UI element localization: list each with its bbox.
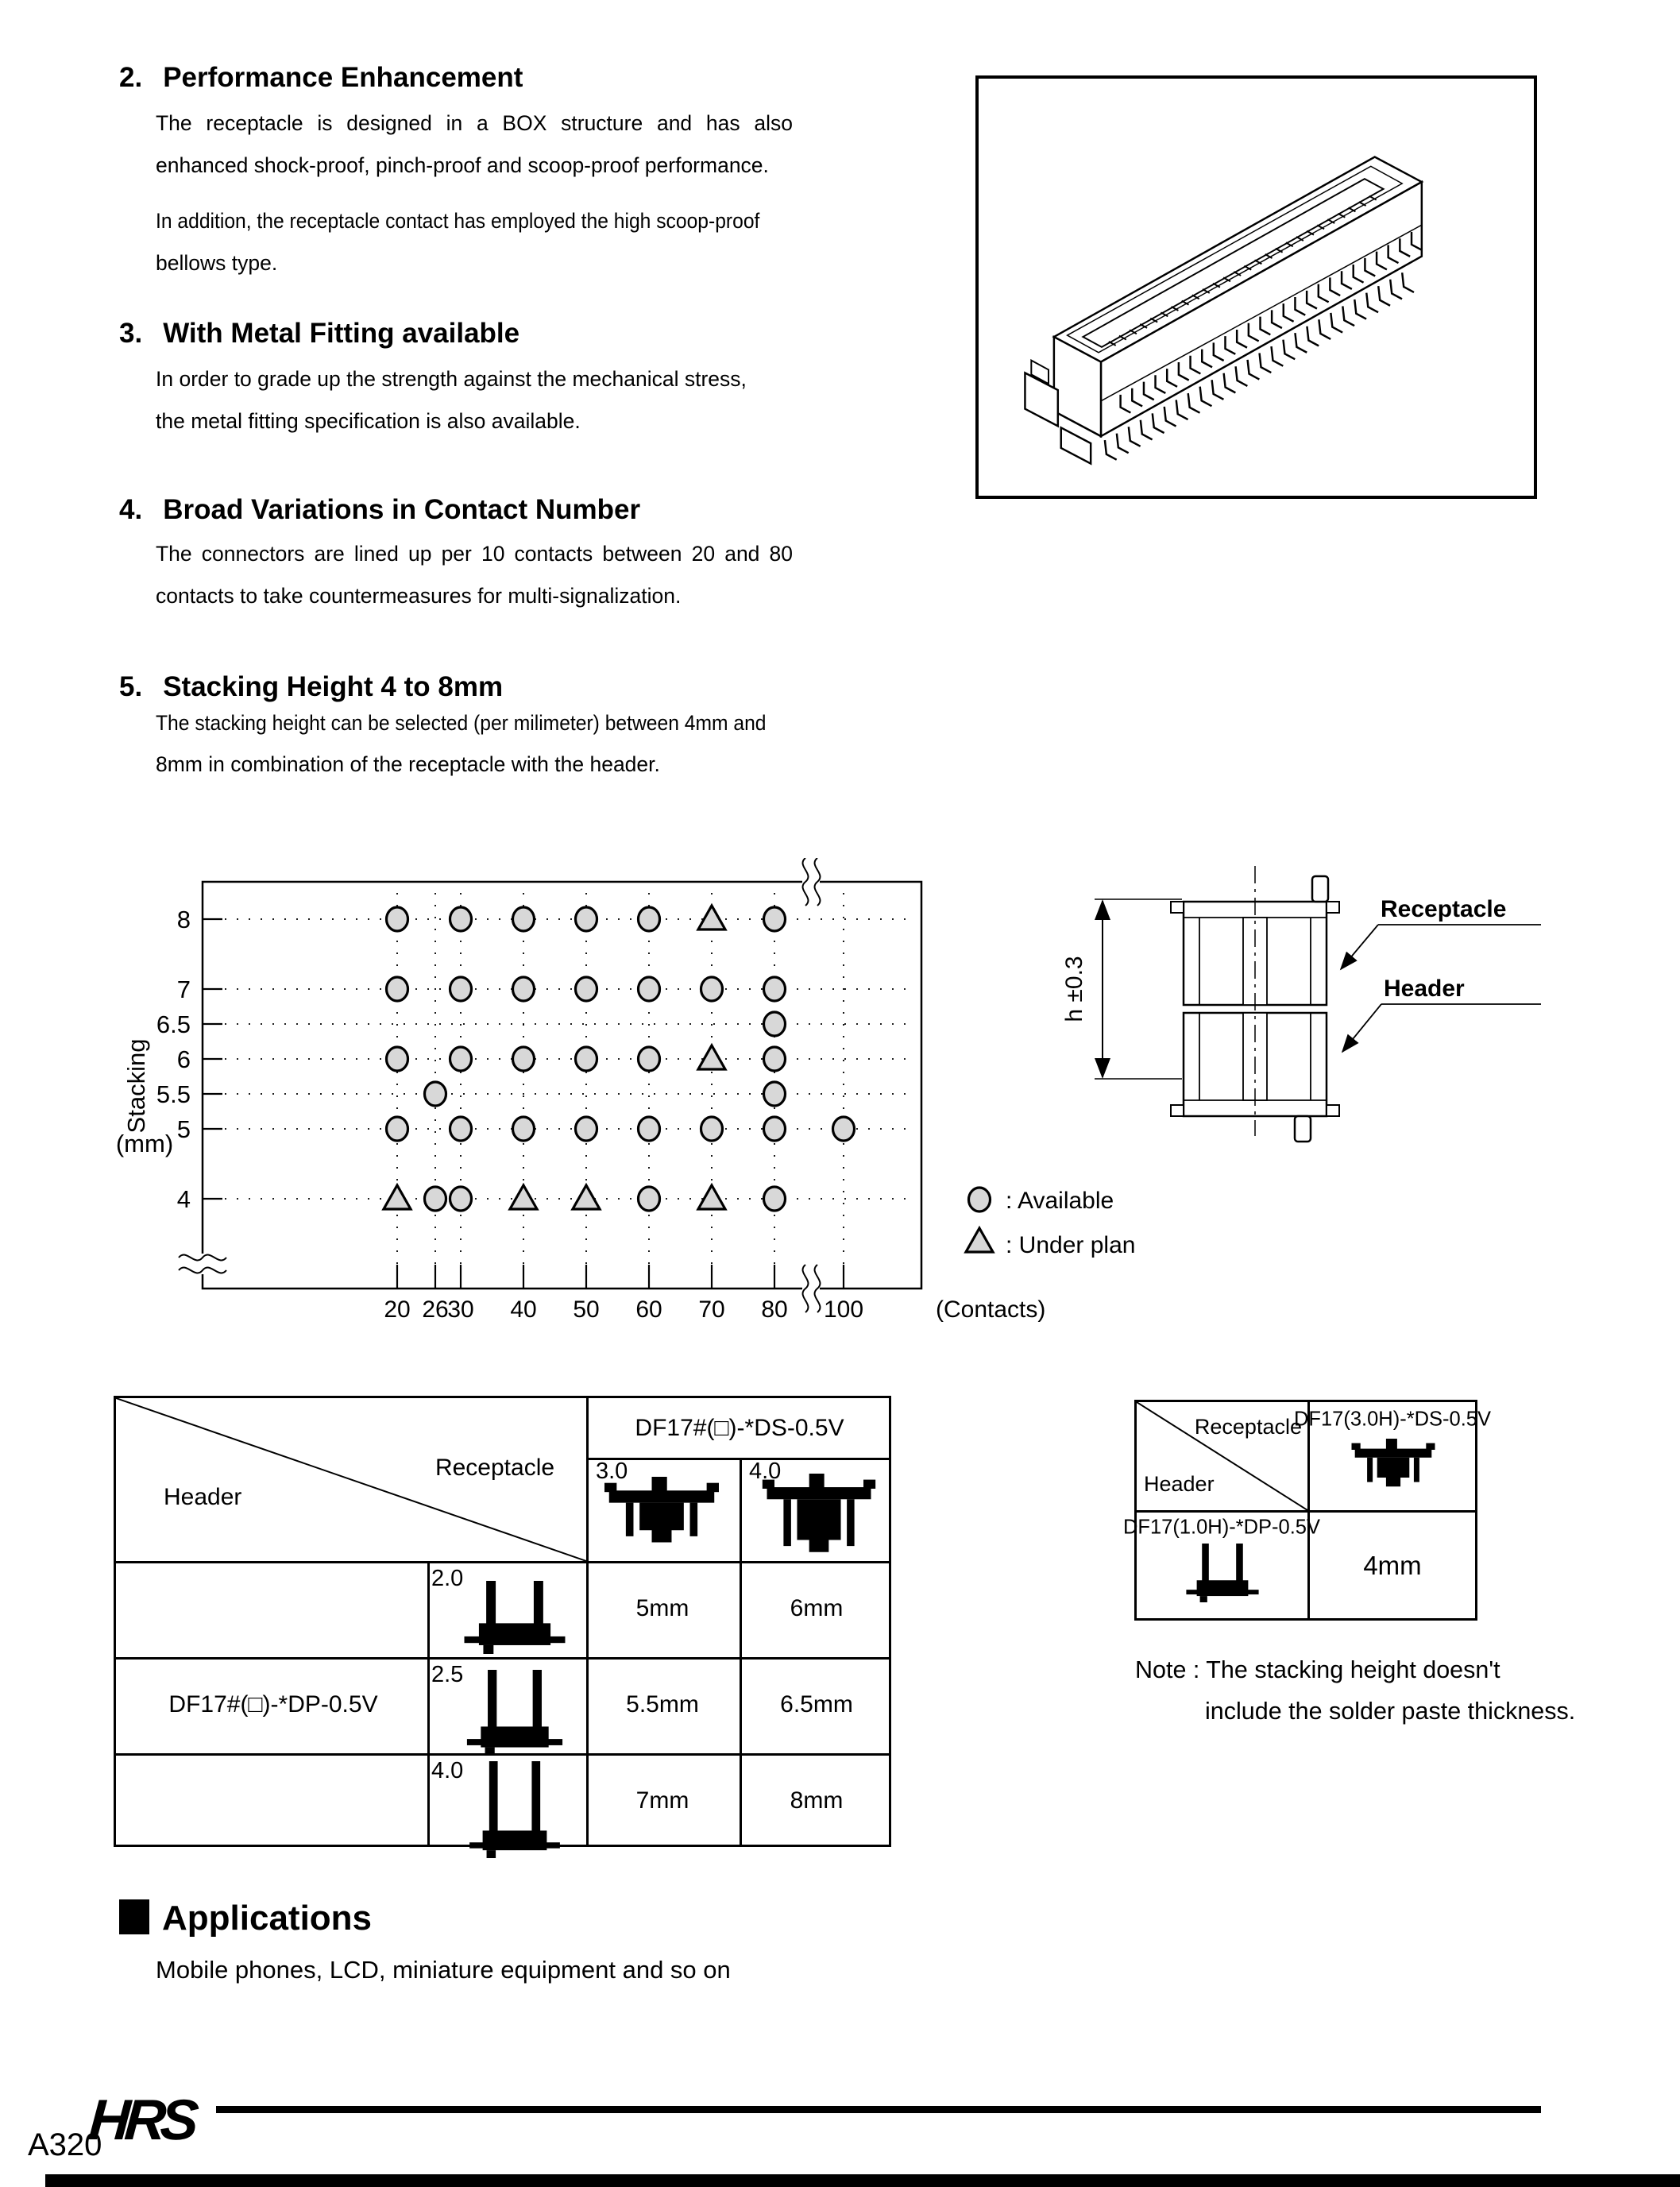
header-part-number: DF17(1.0H)-*DP-0.5V <box>1123 1517 1320 1540</box>
ds-icon-group <box>763 1474 875 1552</box>
section-2-line: The receptacle is designed in a BOX stru… <box>156 111 793 136</box>
mini-receptacle-icon <box>1350 1439 1436 1494</box>
receptacle-label: Receptacle <box>1381 896 1506 922</box>
4mm-combination-table: Receptacle Header DF17(3.0H)-*DS-0.5V DF… <box>1134 1400 1477 1621</box>
y-axis-label: Stacking <box>122 1039 150 1134</box>
point-available <box>513 1117 535 1141</box>
point-available <box>639 907 660 931</box>
hrs-logo: HRS <box>87 2088 195 2153</box>
point-available <box>576 1047 597 1071</box>
x-tick-label: 40 <box>510 1296 536 1323</box>
icon-shape <box>1355 1449 1432 1458</box>
point-under-plan <box>698 1185 725 1209</box>
icon-shape <box>863 1480 875 1489</box>
connector-photo-frame <box>975 75 1537 499</box>
point-available <box>387 1117 408 1141</box>
section-3-number: 3. <box>119 318 142 349</box>
icon-shape <box>479 1623 550 1645</box>
point-available <box>764 1117 786 1141</box>
point-available <box>387 907 408 931</box>
note-line-1: Note : The stacking height doesn't <box>1135 1656 1500 1684</box>
section-5-line: The stacking height can be selected (per… <box>156 711 748 736</box>
header-2.5-icon <box>455 1670 574 1756</box>
legend-available-icon <box>969 1188 991 1211</box>
stack-value: 5.5mm <box>626 1691 699 1718</box>
point-available <box>513 907 535 931</box>
legend-available-label: : Available <box>1006 1188 1114 1214</box>
icon-shape <box>547 1739 562 1745</box>
point-available <box>425 1082 446 1106</box>
x-tick-label: 20 <box>384 1296 410 1323</box>
point-available <box>701 977 723 1001</box>
point-available <box>639 1117 660 1141</box>
icon-shape <box>639 1503 684 1543</box>
stack-value: 5mm <box>636 1595 689 1622</box>
point-available <box>425 1187 446 1211</box>
iso-pin <box>1188 393 1200 413</box>
section-4-title: Broad Variations in Contact Number <box>163 494 640 525</box>
ds-icon-group <box>1352 1439 1435 1486</box>
stack-value: 6.5mm <box>780 1691 853 1718</box>
bottom-bar <box>45 2174 1680 2187</box>
iso-pin <box>1342 306 1354 326</box>
iso-pin <box>1117 434 1129 454</box>
header-part-number: DF17#(□)-*DP-0.5V <box>168 1691 377 1718</box>
mini-header-icon <box>1183 1544 1262 1602</box>
dp-icon-group <box>1186 1544 1258 1602</box>
ds-icon-group <box>604 1477 719 1543</box>
icon-shape <box>531 1761 540 1832</box>
note-line-2: include the solder paste thickness. <box>1205 1698 1575 1725</box>
y-tick-label: 6.5 <box>156 1010 191 1038</box>
legend-under-plan-icon <box>966 1228 993 1252</box>
icon-shape <box>1352 1443 1361 1450</box>
section-2-number: 2. <box>119 62 142 93</box>
point-under-plan <box>510 1185 537 1209</box>
icon-shape <box>1236 1544 1243 1582</box>
icon-shape <box>534 1581 543 1625</box>
section-2-line: enhanced shock-proof, pinch-proof and sc… <box>156 153 793 178</box>
x-tick-label: 60 <box>635 1296 662 1323</box>
iso-pin <box>1402 272 1414 292</box>
section-4-number: 4. <box>119 494 142 525</box>
dp-icon-group <box>469 1761 560 1858</box>
x-axis-label: (Contacts) <box>936 1296 1045 1323</box>
table-divider <box>586 1398 589 1845</box>
section-3-title: With Metal Fitting available <box>163 318 519 349</box>
corner-header-label: Header <box>1144 1472 1215 1497</box>
point-available <box>576 1117 597 1141</box>
icon-shape <box>481 1726 548 1747</box>
icon-shape <box>489 1761 498 1832</box>
point-available <box>513 1047 535 1071</box>
mini-stack-value: 4mm <box>1363 1551 1421 1581</box>
section-3-line: In order to grade up the strength agains… <box>156 367 793 392</box>
icon-shape <box>1186 1590 1198 1594</box>
section-2-line: In addition, the receptacle contact has … <box>156 209 748 234</box>
iso-pin <box>1295 333 1307 353</box>
iso-pin <box>1283 340 1295 360</box>
table-divider <box>1137 1510 1475 1513</box>
y-tick-label: 5 <box>177 1115 191 1143</box>
icon-shape <box>465 1636 481 1643</box>
iso-pin <box>1105 440 1117 460</box>
stacking-height-chart: 2026304050607080100(Contacts)876.565.554… <box>103 858 1176 1350</box>
iso-pin <box>1330 313 1342 333</box>
iso-pin <box>1307 327 1319 346</box>
point-available <box>450 1187 472 1211</box>
header-2.0-icon <box>455 1581 574 1654</box>
point-under-plan <box>573 1185 600 1209</box>
icon-shape <box>487 1850 496 1858</box>
section-2-title: Performance Enhancement <box>163 62 523 93</box>
stack-value: 7mm <box>636 1787 689 1814</box>
receptacle-part-number: DF17#(□)-*DS-0.5V <box>635 1415 844 1442</box>
iso-pin <box>1176 400 1188 419</box>
dp-icon-group <box>465 1581 566 1654</box>
iso-foot-block <box>1061 427 1091 463</box>
point-available <box>450 1047 472 1071</box>
x-tick-label: 100 <box>824 1296 863 1323</box>
icon-shape <box>604 1483 616 1493</box>
plot-border <box>203 882 921 1289</box>
iso-pin <box>1200 387 1212 407</box>
point-available <box>639 1047 660 1071</box>
corner-receptacle-label: Receptacle <box>435 1455 554 1482</box>
iso-pin <box>1212 380 1224 400</box>
x-tick-label: 80 <box>761 1296 787 1323</box>
icon-shape <box>483 1645 493 1654</box>
point-available <box>701 1117 723 1141</box>
iso-pin <box>1236 366 1248 386</box>
x-tick-label: 26 <box>422 1296 448 1323</box>
square-bullet-icon <box>119 1899 149 1934</box>
section-2-heading: 2.Performance Enhancement <box>119 62 523 94</box>
point-under-plan <box>384 1185 411 1209</box>
section-5-heading: 5.Stacking Height 4 to 8mm <box>119 671 503 703</box>
header-leader-arrow <box>1342 1004 1381 1052</box>
icon-shape <box>783 1499 790 1546</box>
point-available <box>764 1047 786 1071</box>
stack-value: 8mm <box>790 1787 844 1814</box>
iso-pin <box>1354 299 1366 319</box>
y-tick-label: 5.5 <box>156 1080 191 1108</box>
y-axis-unit: (mm) <box>116 1130 173 1157</box>
icon-shape <box>488 1670 496 1728</box>
bottom-pin <box>1295 1116 1311 1142</box>
icon-shape <box>609 1490 714 1502</box>
iso-pin <box>1129 427 1141 446</box>
icon-shape <box>707 1483 719 1493</box>
section-4-heading: 4.Broad Variations in Contact Number <box>119 494 640 526</box>
icon-shape <box>1367 1458 1373 1482</box>
icon-shape <box>483 1830 547 1850</box>
icon-shape <box>486 1581 496 1625</box>
stacking-cross-section-diagram: Receptacle Header h ±0.3 <box>1064 842 1589 1144</box>
icon-shape <box>485 1748 495 1756</box>
receptacle-3.0-icon <box>602 1477 721 1553</box>
connector-isometric-drawing <box>979 79 1534 496</box>
icon-shape <box>1202 1544 1209 1582</box>
datasheet-page: 2.Performance Enhancement The receptacle… <box>0 0 1680 2187</box>
y-tick-label: 8 <box>177 906 191 933</box>
section-5-number: 5. <box>119 671 142 702</box>
section-3-heading: 3.With Metal Fitting available <box>119 318 519 350</box>
x-tick-label: 70 <box>698 1296 724 1323</box>
icon-shape <box>847 1499 854 1546</box>
header-label: Header <box>1384 976 1465 1002</box>
section-5-line: 8mm in combination of the receptacle wit… <box>156 752 793 777</box>
iso-pin <box>1141 420 1153 440</box>
point-available <box>639 1187 660 1211</box>
applications-body: Mobile phones, LCD, miniature equipment … <box>156 1956 731 1984</box>
table-divider <box>740 1458 742 1845</box>
icon-shape <box>1197 1580 1249 1596</box>
applications-heading: Applications <box>119 1899 372 1938</box>
iso-pin <box>1164 407 1176 427</box>
point-available <box>764 1082 786 1106</box>
point-available <box>387 977 408 1001</box>
icon-shape <box>467 1739 482 1745</box>
icon-shape <box>626 1503 634 1536</box>
iso-pin <box>1153 413 1164 433</box>
header-4.0-icon <box>455 1761 574 1858</box>
icon-shape <box>1247 1590 1259 1594</box>
section-3-line: the metal fitting specification is also … <box>156 409 793 434</box>
dp-icon-group <box>467 1670 562 1756</box>
point-available <box>764 1187 786 1211</box>
point-under-plan <box>698 906 725 929</box>
iso-pin <box>1319 319 1330 339</box>
table-divider <box>427 1561 430 1845</box>
point-available <box>576 907 597 931</box>
icon-shape <box>763 1480 774 1489</box>
iso-pin <box>1272 346 1284 366</box>
icon-shape <box>797 1499 840 1551</box>
point-available <box>639 977 660 1001</box>
point-available <box>387 1047 408 1071</box>
iso-pin <box>1248 360 1260 380</box>
receptacle-part-number: DF17(3.0H)-*DS-0.5V <box>1294 1408 1491 1432</box>
receptacle-leader-arrow <box>1341 925 1378 969</box>
icon-shape <box>533 1670 542 1728</box>
y-tick-label: 7 <box>177 976 191 1003</box>
legend-under-plan-label: : Under plan <box>1006 1232 1135 1258</box>
corner-header-label: Header <box>164 1484 241 1511</box>
point-available <box>450 907 472 931</box>
point-available <box>833 1117 855 1141</box>
icon-shape <box>549 1636 565 1643</box>
section-5-title: Stacking Height 4 to 8mm <box>163 671 503 702</box>
stacking-combination-table: Receptacle Header DF17#(□)-*DS-0.5V 3.0 … <box>114 1396 891 1847</box>
y-tick-label: 4 <box>177 1185 191 1213</box>
top-pin <box>1312 876 1328 902</box>
iso-pin <box>1366 293 1378 313</box>
corner-receptacle-label: Receptacle <box>1194 1415 1302 1439</box>
icon-shape <box>1200 1596 1207 1602</box>
footer-rule <box>216 2106 1541 2113</box>
point-available <box>450 977 472 1001</box>
point-under-plan <box>698 1045 725 1069</box>
point-available <box>450 1117 472 1141</box>
y-tick-label: 6 <box>177 1045 191 1073</box>
icon-shape <box>546 1842 560 1848</box>
icon-shape <box>690 1503 698 1536</box>
icon-shape <box>767 1487 871 1499</box>
icon-shape <box>469 1842 484 1848</box>
point-available <box>764 907 786 931</box>
stack-value: 6mm <box>790 1595 844 1622</box>
iso-pin <box>1260 353 1272 373</box>
icon-shape <box>1426 1443 1435 1450</box>
x-tick-label: 30 <box>447 1296 473 1323</box>
icon-shape <box>1414 1458 1419 1482</box>
iso-pin <box>1224 373 1236 393</box>
point-available <box>513 977 535 1001</box>
point-available <box>764 1012 786 1036</box>
iso-pin <box>1378 286 1390 306</box>
table-divider <box>586 1458 889 1460</box>
section-4-line: The connectors are lined up per 10 conta… <box>156 542 793 566</box>
receptacle-4.0-icon <box>759 1474 879 1563</box>
iso-pin <box>1390 280 1402 299</box>
table-divider <box>116 1657 889 1660</box>
section-2-line: bellows type. <box>156 251 793 276</box>
point-available <box>576 977 597 1001</box>
x-tick-label: 50 <box>573 1296 599 1323</box>
point-available <box>764 977 786 1001</box>
applications-title: Applications <box>162 1899 372 1938</box>
dim-label: h ±0.3 <box>1064 956 1087 1022</box>
section-4-line: contacts to take countermeasures for mul… <box>156 584 793 609</box>
icon-shape <box>1377 1458 1410 1486</box>
